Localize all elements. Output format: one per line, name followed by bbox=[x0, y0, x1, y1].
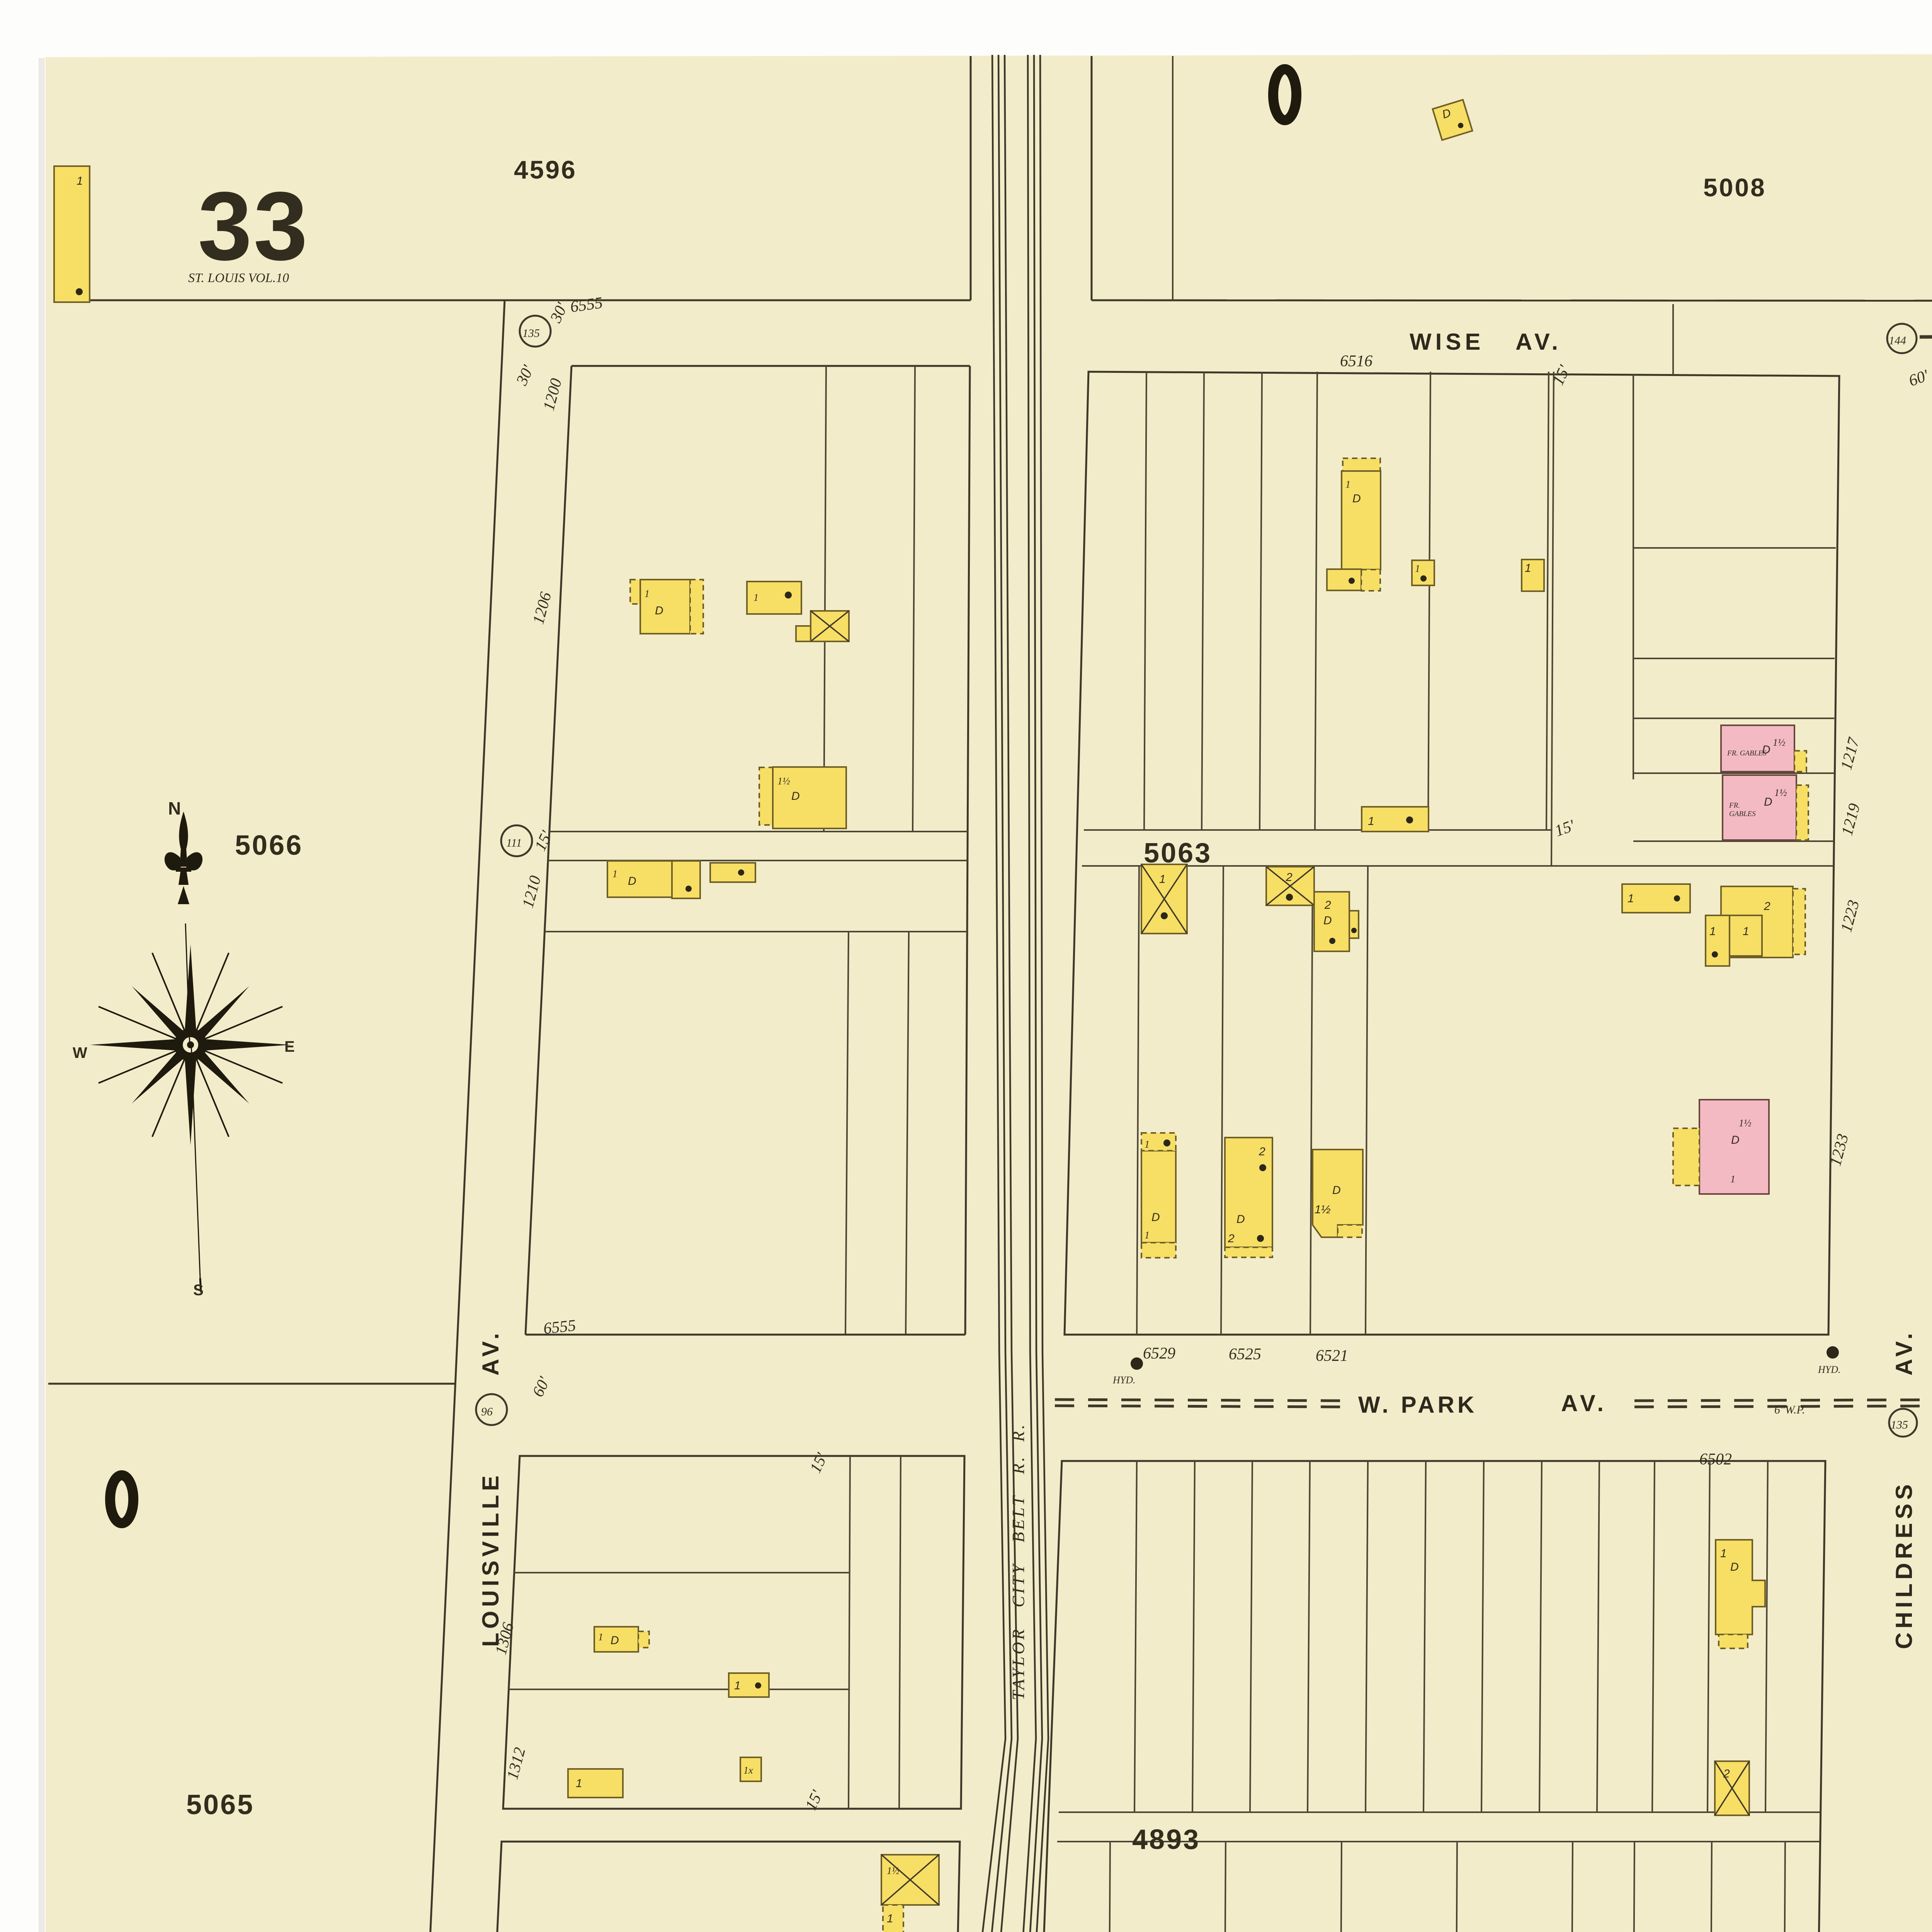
svg-text:1: 1 bbox=[598, 1631, 603, 1643]
svg-text:HYD.: HYD. bbox=[1818, 1364, 1841, 1375]
svg-text:1: 1 bbox=[1145, 1139, 1150, 1150]
svg-text:111: 111 bbox=[506, 837, 522, 849]
svg-text:AV.: AV. bbox=[1561, 1390, 1607, 1416]
svg-text:WISE: WISE bbox=[1410, 329, 1484, 355]
svg-text:1: 1 bbox=[1368, 815, 1374, 828]
svg-text:D: D bbox=[1151, 1211, 1160, 1224]
svg-text:1: 1 bbox=[1525, 562, 1531, 575]
svg-text:1: 1 bbox=[77, 175, 83, 187]
svg-text:1: 1 bbox=[1415, 563, 1420, 574]
svg-text:S: S bbox=[193, 1282, 204, 1299]
svg-text:GABLES: GABLES bbox=[1729, 810, 1756, 818]
svg-text:FR. GABLES: FR. GABLES bbox=[1727, 749, 1767, 757]
svg-text:D: D bbox=[611, 1634, 619, 1647]
svg-text:CHILDRESS: CHILDRESS bbox=[1891, 1480, 1917, 1649]
svg-text:2: 2 bbox=[1764, 900, 1770, 913]
svg-text:96: 96 bbox=[481, 1405, 493, 1418]
svg-text:1½: 1½ bbox=[1739, 1117, 1752, 1129]
svg-text:D: D bbox=[1323, 914, 1332, 927]
svg-text:4596: 4596 bbox=[514, 155, 577, 184]
svg-text:1½: 1½ bbox=[1774, 787, 1787, 798]
svg-text:2: 2 bbox=[1723, 1767, 1730, 1780]
svg-text:E: E bbox=[284, 1038, 295, 1055]
svg-text:2: 2 bbox=[1259, 1145, 1265, 1158]
svg-text:5065: 5065 bbox=[186, 1789, 254, 1820]
svg-text:D: D bbox=[655, 604, 663, 617]
svg-text:33: 33 bbox=[198, 172, 309, 281]
svg-text:1: 1 bbox=[734, 1679, 741, 1692]
svg-text:ST. LOUIS VOL.10: ST. LOUIS VOL.10 bbox=[188, 271, 289, 285]
svg-text:1: 1 bbox=[1730, 1173, 1735, 1185]
svg-text:1½: 1½ bbox=[1315, 1203, 1331, 1216]
svg-text:N: N bbox=[168, 798, 181, 818]
svg-text:1: 1 bbox=[645, 588, 650, 599]
svg-text:AV.: AV. bbox=[1891, 1329, 1917, 1376]
svg-text:D: D bbox=[1236, 1213, 1245, 1226]
svg-text:5008: 5008 bbox=[1703, 173, 1766, 202]
svg-text:AV.: AV. bbox=[478, 1329, 503, 1376]
svg-text:6521: 6521 bbox=[1316, 1347, 1348, 1365]
svg-text:1: 1 bbox=[753, 592, 759, 603]
svg-text:1½: 1½ bbox=[887, 1865, 900, 1876]
svg-text:5066: 5066 bbox=[235, 830, 303, 861]
svg-text:6525: 6525 bbox=[1229, 1345, 1261, 1363]
svg-text:TAYLOR CITY BELT R. R.: TAYLOR CITY BELT R. R. bbox=[1009, 1422, 1028, 1700]
svg-text:1: 1 bbox=[1720, 1547, 1727, 1560]
svg-text:D: D bbox=[1764, 796, 1772, 808]
svg-text:W: W bbox=[73, 1044, 87, 1061]
svg-text:1: 1 bbox=[1345, 479, 1350, 490]
svg-text:W. PARK: W. PARK bbox=[1358, 1392, 1477, 1418]
svg-text:6529: 6529 bbox=[1143, 1345, 1175, 1362]
svg-text:6555: 6555 bbox=[543, 1316, 577, 1338]
svg-text:135: 135 bbox=[1891, 1418, 1908, 1431]
svg-text:6"W.P.: 6"W.P. bbox=[1774, 1403, 1805, 1416]
svg-text:4893: 4893 bbox=[1132, 1824, 1200, 1855]
svg-text:D: D bbox=[1731, 1134, 1740, 1146]
svg-text:6516: 6516 bbox=[1340, 352, 1372, 370]
svg-text:FR.: FR. bbox=[1729, 801, 1740, 810]
svg-text:2: 2 bbox=[1228, 1232, 1235, 1245]
svg-text:D: D bbox=[791, 790, 800, 803]
svg-text:5063: 5063 bbox=[1144, 838, 1212, 869]
svg-text:D: D bbox=[1352, 492, 1361, 505]
svg-text:AV.: AV. bbox=[1515, 329, 1562, 355]
svg-text:1½: 1½ bbox=[1773, 737, 1786, 748]
svg-text:1: 1 bbox=[1709, 925, 1716, 938]
svg-text:2: 2 bbox=[1286, 871, 1293, 884]
svg-text:1: 1 bbox=[612, 868, 617, 879]
svg-text:D: D bbox=[628, 875, 636, 888]
svg-text:D: D bbox=[1730, 1561, 1739, 1573]
svg-text:LOUISVILLE: LOUISVILLE bbox=[478, 1472, 503, 1647]
svg-text:1: 1 bbox=[1159, 873, 1166, 886]
svg-text:1: 1 bbox=[1145, 1230, 1150, 1241]
svg-text:2: 2 bbox=[1324, 899, 1331, 912]
svg-text:135: 135 bbox=[522, 327, 540, 340]
svg-text:1x: 1x bbox=[743, 1765, 753, 1776]
svg-text:1: 1 bbox=[1743, 925, 1749, 938]
svg-text:1: 1 bbox=[576, 1777, 582, 1790]
svg-text:HYD.: HYD. bbox=[1112, 1374, 1136, 1386]
svg-text:1: 1 bbox=[887, 1912, 893, 1925]
svg-text:144: 144 bbox=[1889, 334, 1906, 347]
svg-text:6502: 6502 bbox=[1699, 1451, 1732, 1468]
svg-text:D: D bbox=[1332, 1184, 1341, 1197]
svg-text:1½: 1½ bbox=[777, 776, 790, 787]
svg-text:1: 1 bbox=[1628, 892, 1634, 905]
